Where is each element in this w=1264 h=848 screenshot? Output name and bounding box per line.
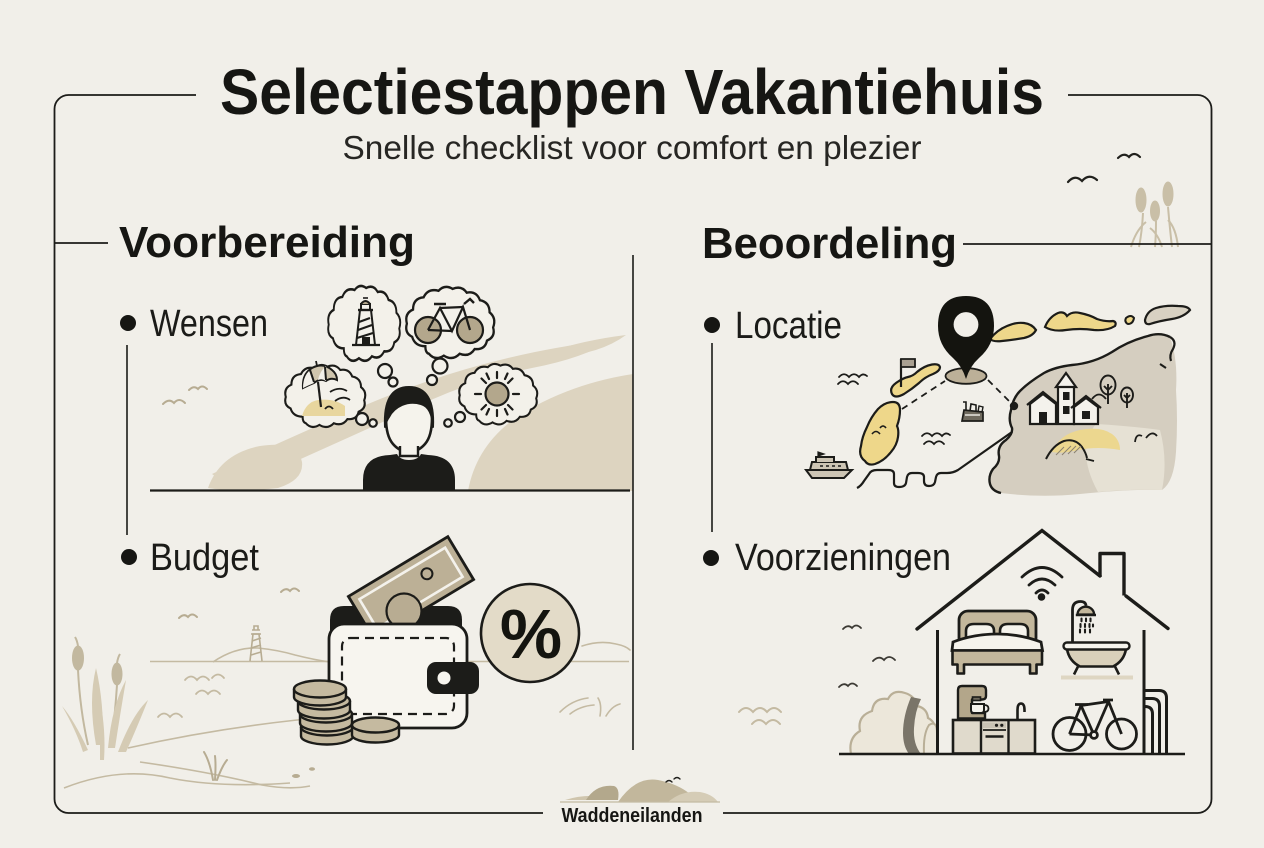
svg-text:Budget: Budget [150,537,259,579]
svg-text:Snelle checklist voor comfort: Snelle checklist voor comfort en plezier [343,129,922,166]
svg-text:Selectiestappen Vakantiehuis: Selectiestappen Vakantiehuis [220,56,1044,128]
svg-text:Wensen: Wensen [150,303,268,345]
svg-text:Waddeneilanden: Waddeneilanden [562,805,703,827]
svg-text:Beoordeling: Beoordeling [702,219,957,268]
svg-text:%: % [500,595,562,673]
svg-text:Locatie: Locatie [735,305,842,347]
svg-text:Voorbereiding: Voorbereiding [119,218,415,267]
svg-text:Voorzieningen: Voorzieningen [735,537,951,579]
